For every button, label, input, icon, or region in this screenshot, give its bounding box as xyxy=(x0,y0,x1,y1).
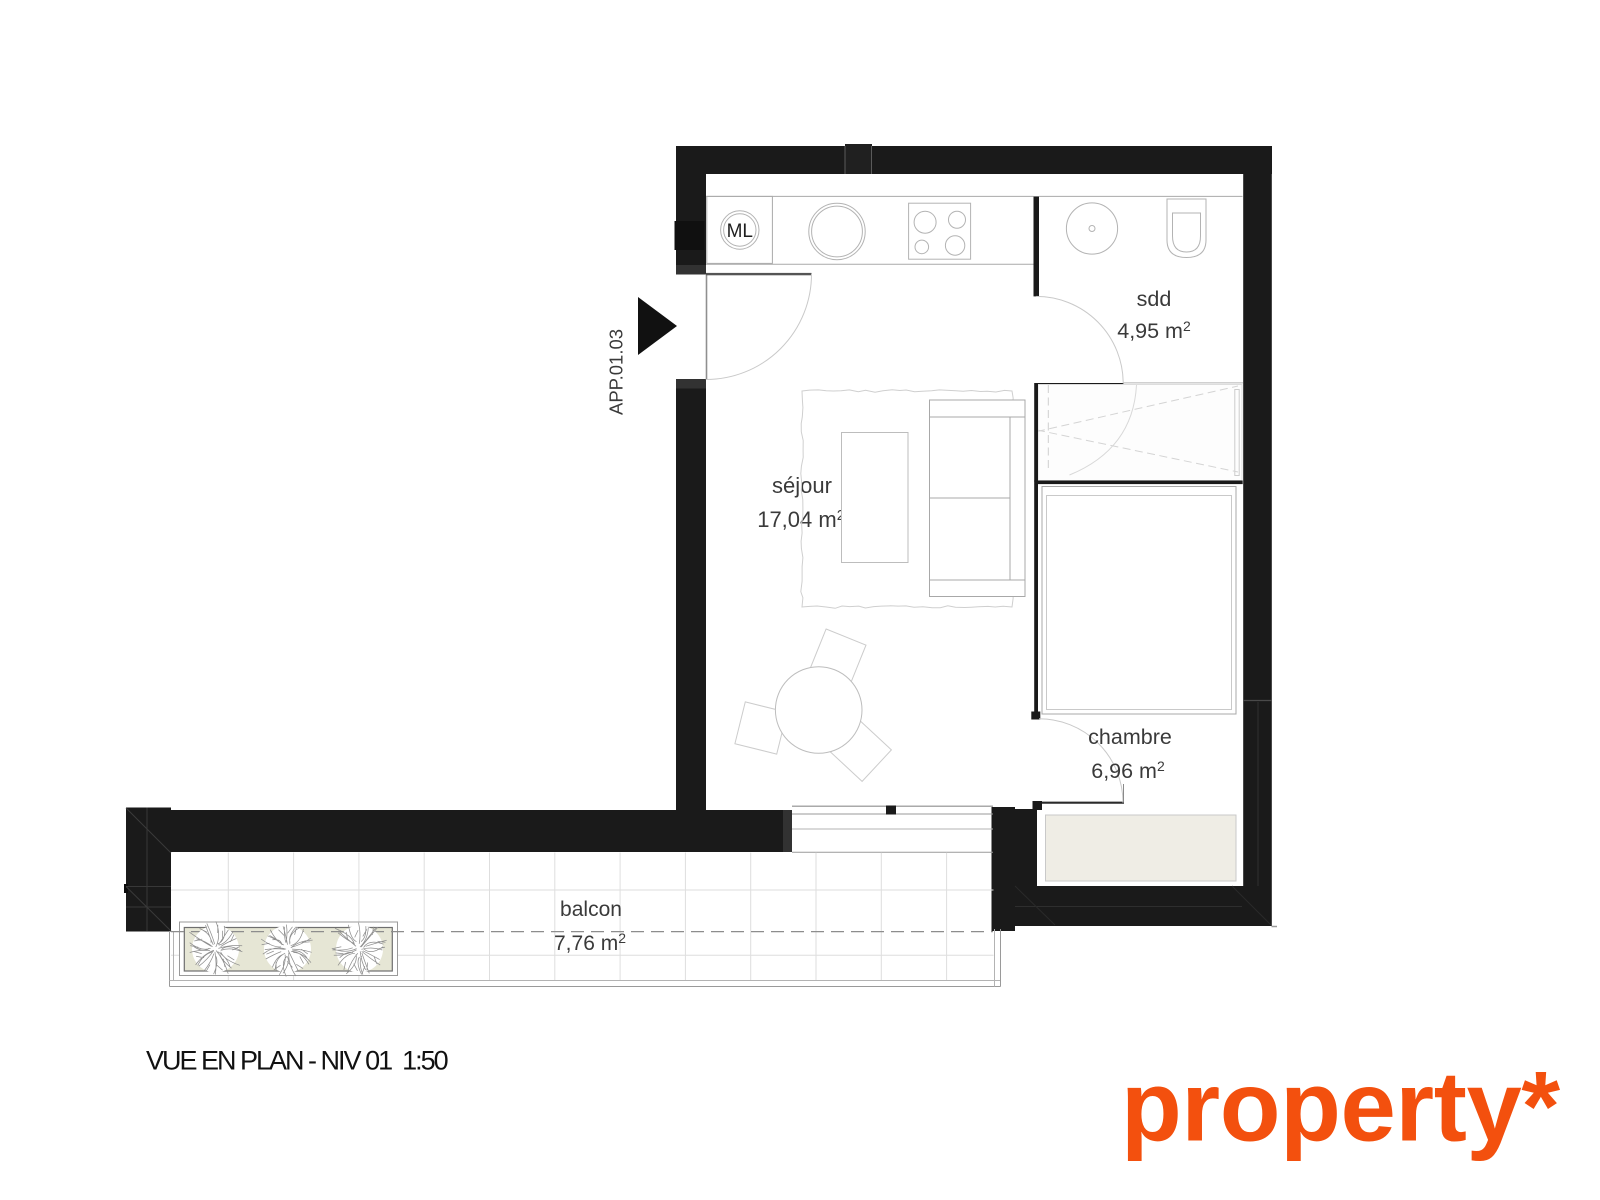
svg-text:VUE EN PLAN - NIV 01 1:50: VUE EN PLAN - NIV 01 1:50 xyxy=(146,1046,448,1076)
svg-text:4,95 m2: 4,95 m2 xyxy=(1117,318,1191,343)
svg-text:6,96 m2: 6,96 m2 xyxy=(1091,758,1165,783)
svg-text:ML: ML xyxy=(727,221,753,242)
svg-text:property*: property* xyxy=(1121,1052,1560,1163)
svg-text:balcon: balcon xyxy=(560,898,622,921)
svg-text:chambre: chambre xyxy=(1088,725,1172,749)
svg-text:17,04 m2: 17,04 m2 xyxy=(757,507,845,532)
svg-text:APP.01.03: APP.01.03 xyxy=(606,329,627,415)
svg-text:sdd: sdd xyxy=(1137,287,1172,311)
svg-text:7,76 m2: 7,76 m2 xyxy=(554,930,626,955)
